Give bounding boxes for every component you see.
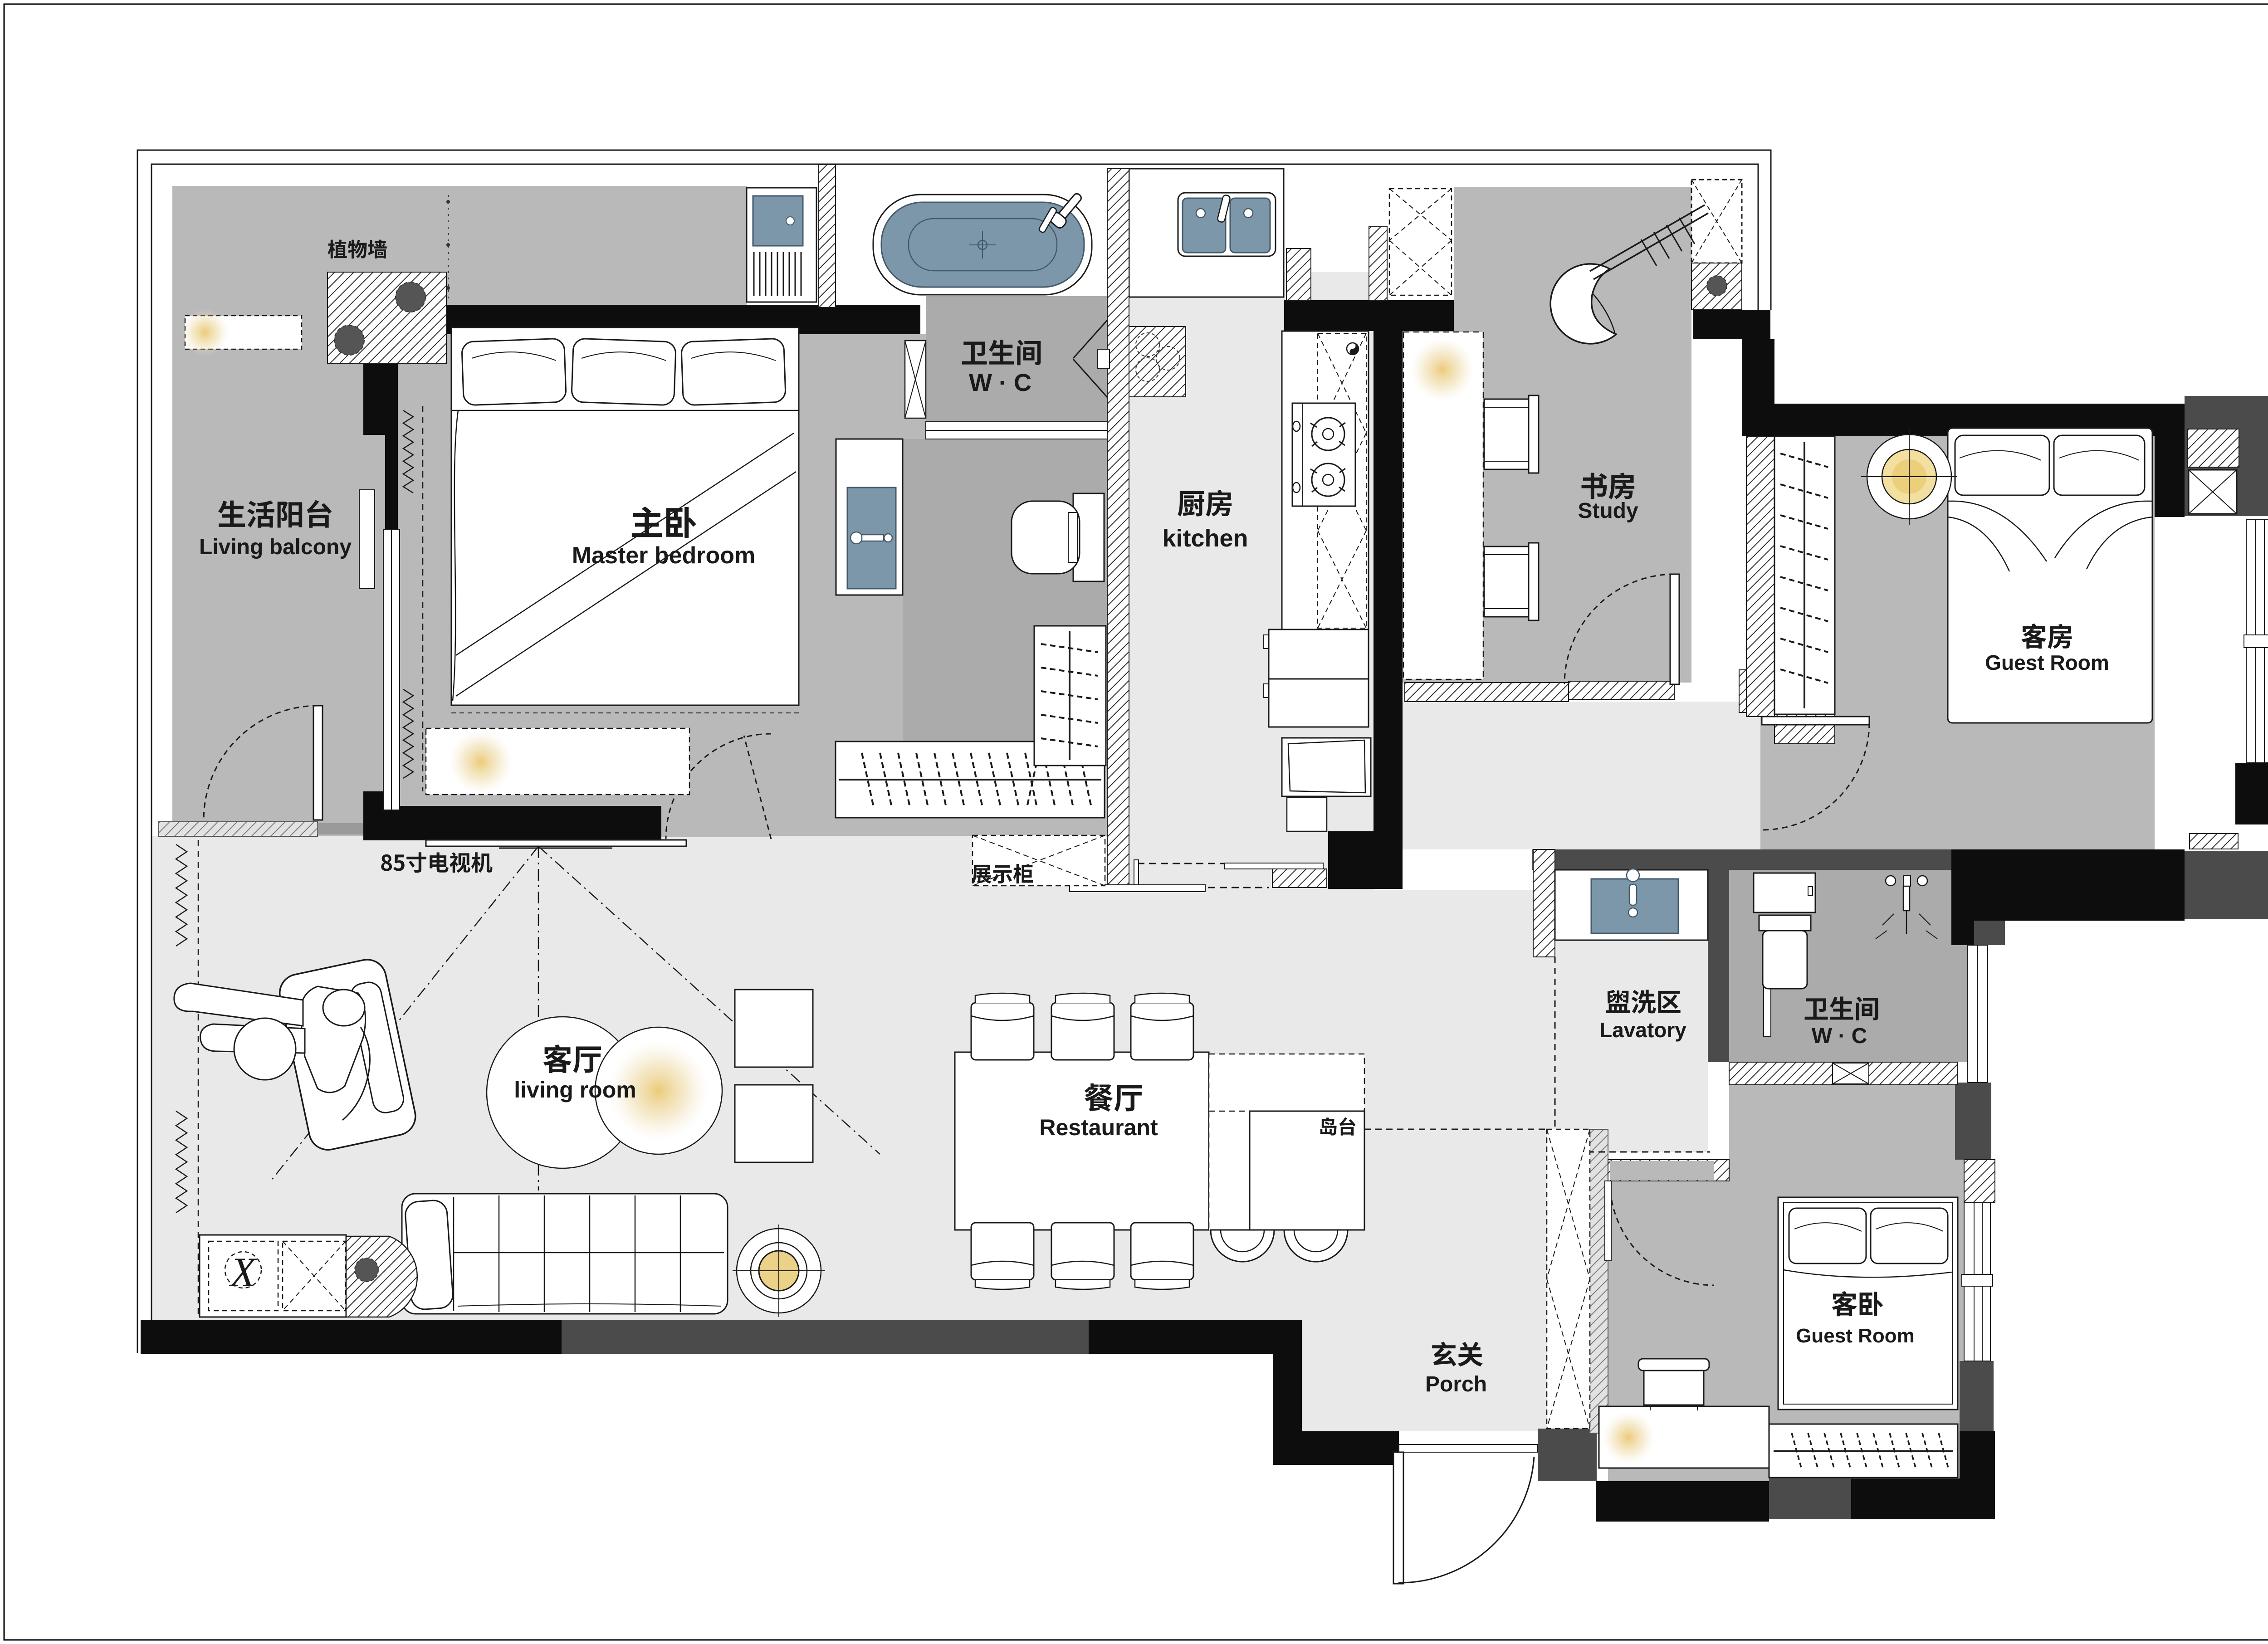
svg-text:Guest Room: Guest Room [1796,1325,1915,1347]
svg-text:Living balcony: Living balcony [199,535,352,559]
svg-text:X: X [229,1249,258,1295]
svg-text:Master bedroom: Master bedroom [572,542,756,569]
svg-text:W · C: W · C [1812,1024,1867,1048]
svg-text:Restaurant: Restaurant [1039,1115,1158,1140]
svg-text:Study: Study [1578,499,1638,523]
svg-text:Porch: Porch [1425,1372,1487,1396]
svg-text:Lavatory: Lavatory [1599,1018,1686,1042]
svg-text:W · C: W · C [969,369,1031,396]
svg-text:kitchen: kitchen [1162,525,1248,552]
svg-text:Guest Room: Guest Room [1985,651,2109,674]
svg-text:living room: living room [514,1077,636,1103]
